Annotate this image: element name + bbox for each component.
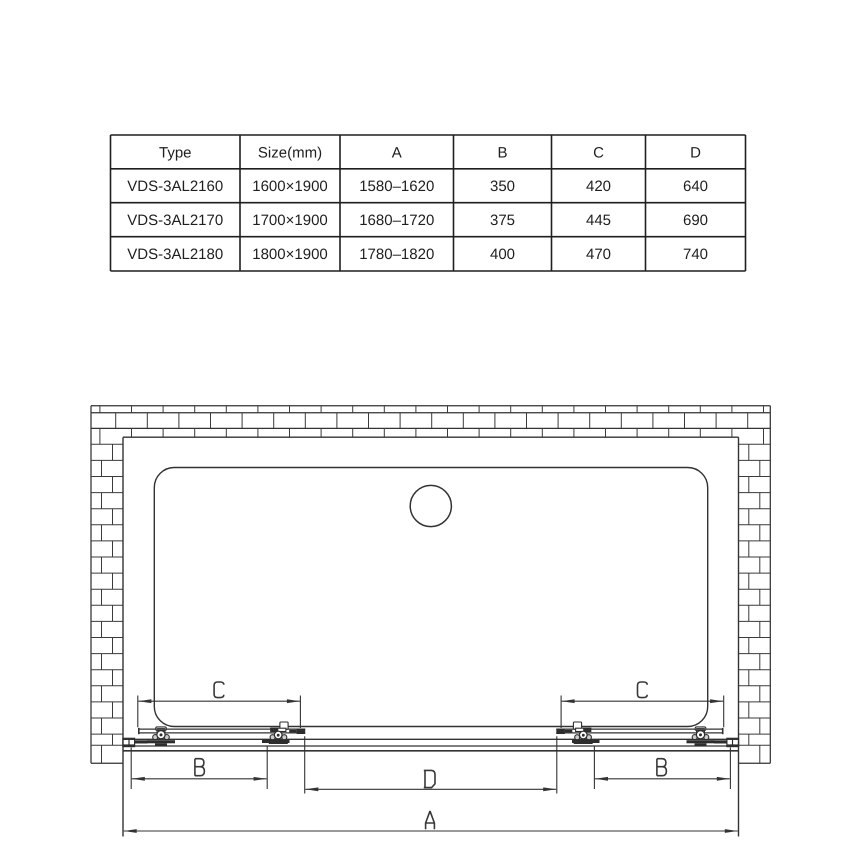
svg-text:1680–1720: 1680–1720	[359, 212, 434, 229]
svg-text:690: 690	[683, 212, 708, 229]
svg-text:A: A	[392, 144, 402, 161]
svg-text:445: 445	[586, 212, 611, 229]
svg-text:375: 375	[490, 212, 515, 229]
svg-text:640: 640	[683, 178, 708, 195]
svg-text:D: D	[690, 144, 701, 161]
svg-text:VDS-3AL2160: VDS-3AL2160	[127, 178, 223, 195]
svg-text:1700×1900: 1700×1900	[252, 212, 328, 229]
svg-text:420: 420	[586, 178, 611, 195]
svg-text:1800×1900: 1800×1900	[252, 246, 328, 263]
svg-text:1780–1820: 1780–1820	[359, 246, 434, 263]
svg-text:Type: Type	[159, 144, 192, 161]
svg-text:Size(mm): Size(mm)	[258, 144, 322, 161]
svg-text:1580–1620: 1580–1620	[359, 178, 434, 195]
svg-text:350: 350	[490, 178, 515, 195]
svg-text:400: 400	[490, 246, 515, 263]
svg-text:1600×1900: 1600×1900	[252, 178, 328, 195]
svg-text:470: 470	[586, 246, 611, 263]
svg-text:VDS-3AL2170: VDS-3AL2170	[127, 212, 223, 229]
svg-text:B: B	[497, 144, 507, 161]
svg-text:C: C	[593, 144, 604, 161]
svg-text:740: 740	[683, 246, 708, 263]
svg-text:VDS-3AL2180: VDS-3AL2180	[127, 246, 223, 263]
